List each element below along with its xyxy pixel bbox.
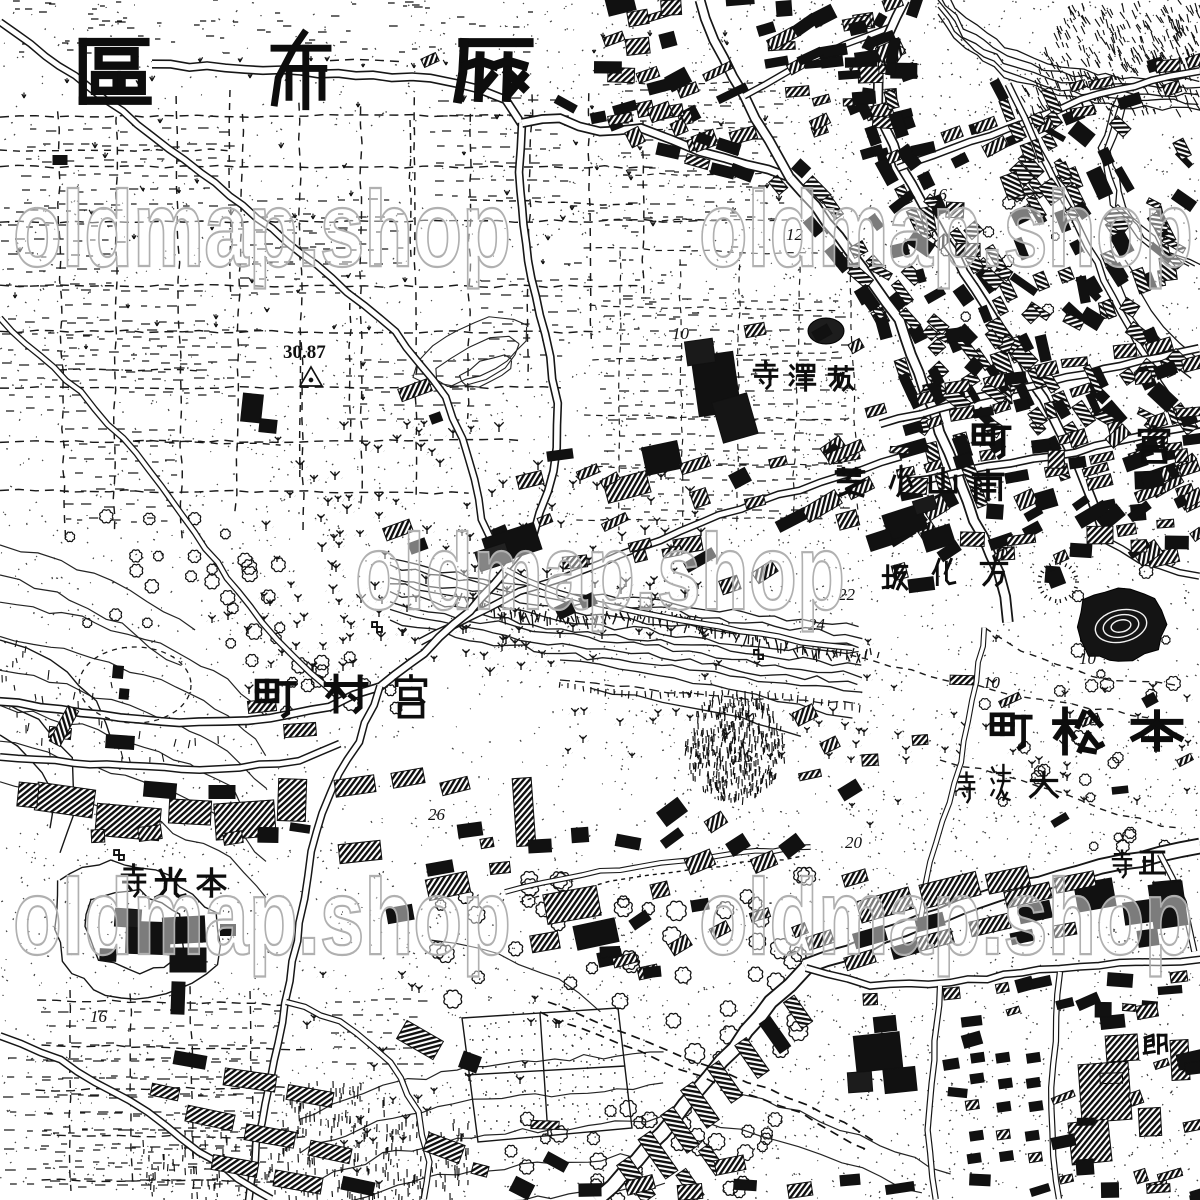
- svg-text:16: 16: [735, 747, 753, 766]
- svg-text:oldmap.shop: oldmap.shop: [699, 168, 1193, 289]
- svg-text:10: 10: [983, 673, 1001, 692]
- svg-text:10: 10: [1079, 649, 1097, 668]
- svg-text:30.87: 30.87: [283, 342, 326, 363]
- svg-text:16: 16: [90, 1007, 108, 1026]
- svg-text:oldmap.shop: oldmap.shop: [699, 856, 1193, 977]
- svg-text:oldmap.shop: oldmap.shop: [13, 856, 511, 977]
- svg-text:oldmap.shop: oldmap.shop: [355, 511, 845, 632]
- svg-text:20: 20: [845, 833, 863, 852]
- svg-text:10: 10: [672, 324, 690, 343]
- svg-text:26: 26: [428, 805, 446, 824]
- svg-text:oldmap.shop: oldmap.shop: [13, 168, 511, 289]
